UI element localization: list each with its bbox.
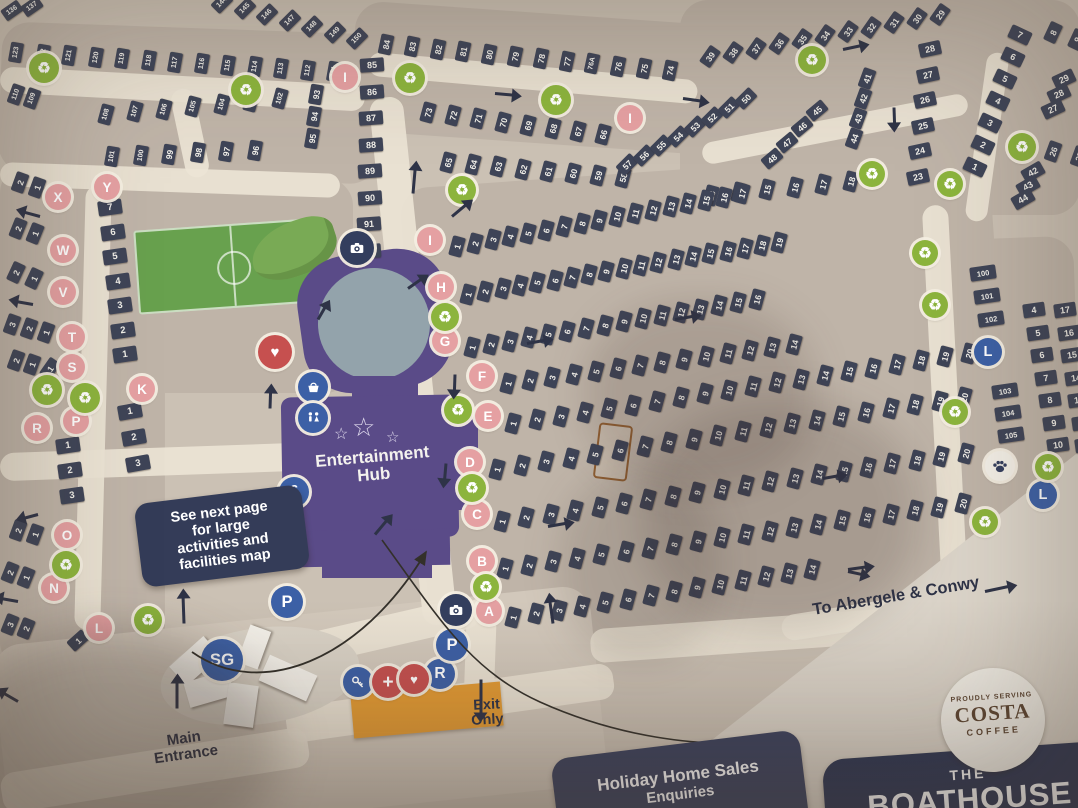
star-icon: ☆	[352, 412, 375, 443]
letter-badge-sg: SG	[201, 639, 243, 681]
recycling-icon: ♻	[32, 375, 62, 405]
recycling-icon: ♻	[912, 240, 938, 266]
pitch-4: 4	[105, 272, 131, 290]
pitch-7: 7	[1034, 369, 1058, 386]
recycling-icon: ♻	[473, 574, 499, 600]
pitch-136: 136	[0, 0, 24, 22]
letter-badge-f: F	[469, 363, 495, 389]
recycling-icon: ♻	[937, 171, 963, 197]
star-icon: ☆	[386, 428, 399, 446]
letter-badge-l: L	[974, 338, 1002, 366]
recycling-icon: ♻	[798, 46, 826, 74]
recycling-icon: ♻	[1035, 454, 1061, 480]
pitch-13: 13	[1067, 392, 1078, 409]
pitch-91: 91	[357, 216, 382, 232]
letter-badge-h: H	[428, 274, 454, 300]
letter-badge-r: R	[425, 659, 455, 689]
recycling-icon: ♻	[458, 474, 486, 502]
pitch-65: 65	[439, 151, 457, 174]
letter-badge-l: L	[86, 615, 112, 641]
pitch-145: 145	[233, 0, 256, 20]
direction-arrow	[269, 392, 273, 408]
recycling-icon: ♻	[922, 292, 948, 318]
recycling-icon: ♻	[231, 75, 261, 105]
direction-arrow	[893, 107, 897, 123]
pitch-100: 100	[132, 144, 148, 166]
pitch-116: 116	[193, 53, 209, 75]
toilets-icon	[298, 403, 328, 433]
pitch-15: 15	[1060, 347, 1078, 364]
letter-badge-c: C	[464, 501, 490, 527]
pitch-12: 12	[1071, 414, 1078, 431]
show-home	[223, 682, 259, 728]
pitch-120: 120	[87, 46, 103, 68]
pitch-147: 147	[278, 9, 301, 32]
letter-badge-p: P	[271, 586, 303, 618]
pitch-87: 87	[359, 110, 384, 126]
recycling-icon: ♻	[29, 53, 59, 83]
pitch-5: 5	[1026, 324, 1050, 341]
camera-icon	[340, 231, 374, 265]
letter-badge-r: R	[24, 415, 50, 441]
pitch-14: 14	[1064, 369, 1078, 386]
pitch-63: 63	[489, 156, 507, 179]
key-icon	[343, 667, 373, 697]
recycling-icon: ♻	[859, 161, 885, 187]
football-pitch-centre-circle	[216, 250, 252, 286]
pitch-118: 118	[140, 50, 156, 72]
recycling-icon: ♻	[134, 606, 162, 634]
recycling-icon: ♻	[395, 63, 425, 93]
direction-arrow	[182, 597, 186, 623]
pitch-96: 96	[246, 140, 262, 162]
letter-badge-k: K	[129, 376, 155, 402]
shop-icon	[298, 372, 328, 402]
pitch-86: 86	[359, 84, 384, 100]
pitch-16: 16	[1057, 324, 1078, 341]
pitch-89: 89	[358, 163, 383, 179]
letter-badge-t: T	[59, 324, 85, 350]
recycling-icon: ♻	[942, 399, 968, 425]
letter-badge-v: V	[50, 279, 76, 305]
letter-badge-b: B	[469, 548, 495, 574]
letter-badge-l: L	[1029, 481, 1057, 509]
pitch-146: 146	[255, 3, 278, 26]
holiday-park-map-photo: ☆ ☆ ☆ Entertainment Hub 1361371231221211…	[0, 0, 1078, 808]
letter-badge-d: D	[457, 449, 483, 475]
letter-badge-i: I	[417, 227, 443, 253]
letter-badge-g: G	[432, 328, 458, 354]
recycling-icon: ♻	[972, 509, 998, 535]
recycling-icon: ♻	[1008, 133, 1036, 161]
pitch-62: 62	[514, 158, 532, 181]
heart-icon: ♥	[399, 664, 429, 694]
pitch-88: 88	[358, 137, 383, 153]
letter-badge-y: Y	[94, 174, 120, 200]
letter-badge-w: W	[50, 237, 76, 263]
pitch-112: 112	[299, 59, 315, 81]
pitch-9: 9	[1042, 414, 1066, 431]
recycling-icon: ♻	[444, 396, 472, 424]
recycling-icon: ♻	[431, 303, 459, 331]
letter-badge-i: I	[332, 64, 358, 90]
exit-only-label: Exit Only	[454, 696, 520, 730]
pitch-64: 64	[464, 153, 482, 176]
star-icon: ☆	[334, 424, 348, 444]
pitch-2: 2	[110, 321, 136, 339]
letter-badge-a: A	[476, 598, 502, 624]
letter-badge-o: O	[54, 522, 80, 548]
defibrillator-icon: ♥	[258, 335, 292, 369]
recycling-icon: ♻	[541, 85, 571, 115]
pitch-85: 85	[360, 57, 385, 73]
direction-arrow	[453, 374, 457, 390]
letter-badge-x: X	[45, 184, 71, 210]
pitch-137: 137	[20, 0, 44, 18]
paw-icon	[985, 451, 1015, 481]
recycling-icon: ♻	[70, 383, 100, 413]
letter-badge-p: P	[436, 629, 468, 661]
pitch-90: 90	[357, 190, 382, 206]
letter-badge-n: N	[41, 575, 67, 601]
recycling-icon: ♻	[52, 551, 80, 579]
letter-badge-i: I	[617, 105, 643, 131]
direction-arrow	[176, 683, 179, 709]
camera-icon	[440, 594, 472, 626]
letter-badge-s: S	[59, 354, 85, 380]
pitch-6: 6	[100, 223, 126, 241]
entertainment-hub-foot2	[322, 558, 432, 578]
letter-badge-e: E	[475, 403, 501, 429]
pitch-144: 144	[210, 0, 233, 14]
